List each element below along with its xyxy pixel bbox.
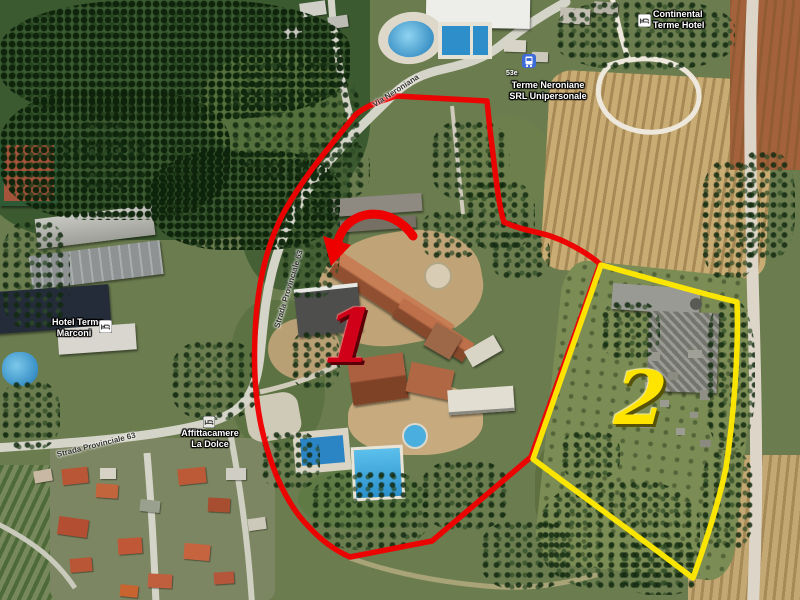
red-curved-arrow xyxy=(338,214,413,241)
label-hotel-terme-marconi[interactable]: Hotel Terme Marconi xyxy=(52,317,96,339)
red-arrow-head xyxy=(323,236,351,266)
area2-number: 2 xyxy=(612,362,669,436)
label-continental-terme-hotel[interactable]: Continental Terme Hotel xyxy=(653,9,704,31)
label-line: Terme Neroniane xyxy=(487,80,609,91)
area1-number: 1 xyxy=(321,300,378,374)
label-terme-neroniane[interactable]: Terme Neroniane SRL Unipersonale xyxy=(487,80,609,102)
hotel-bed-icon[interactable] xyxy=(638,14,651,32)
label-line: Hotel Terme xyxy=(52,317,96,328)
hotel-bed-icon[interactable] xyxy=(99,320,112,338)
bus-stop-icon[interactable] xyxy=(522,54,536,73)
satellite-map-canvas[interactable]: 1 2 53e Terme Neroniane SRL Unipersonale… xyxy=(0,0,800,600)
label-line: Affittacamere xyxy=(172,428,248,439)
label-line: Terme Hotel xyxy=(653,20,704,31)
area1-red-outline xyxy=(255,96,600,557)
label-line: SRL Unipersonale xyxy=(487,91,609,102)
label-line: Continental xyxy=(653,9,704,20)
label-line: Marconi xyxy=(52,328,96,339)
label-affittacamere-la-dolce[interactable]: Affittacamere La Dolce xyxy=(172,428,248,450)
label-line: La Dolce xyxy=(172,439,248,450)
bus-stop-code: 53e xyxy=(506,70,518,77)
